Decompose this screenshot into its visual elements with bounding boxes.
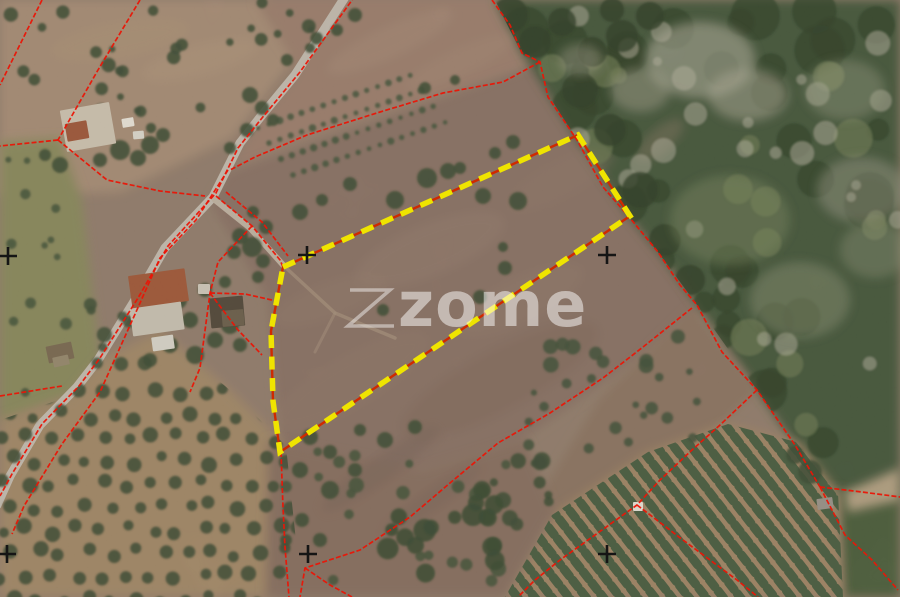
satellite-photo: zome (0, 0, 900, 597)
zome-watermark-text: zome (398, 268, 587, 341)
aerial-photo-viewport: zome (0, 0, 900, 597)
